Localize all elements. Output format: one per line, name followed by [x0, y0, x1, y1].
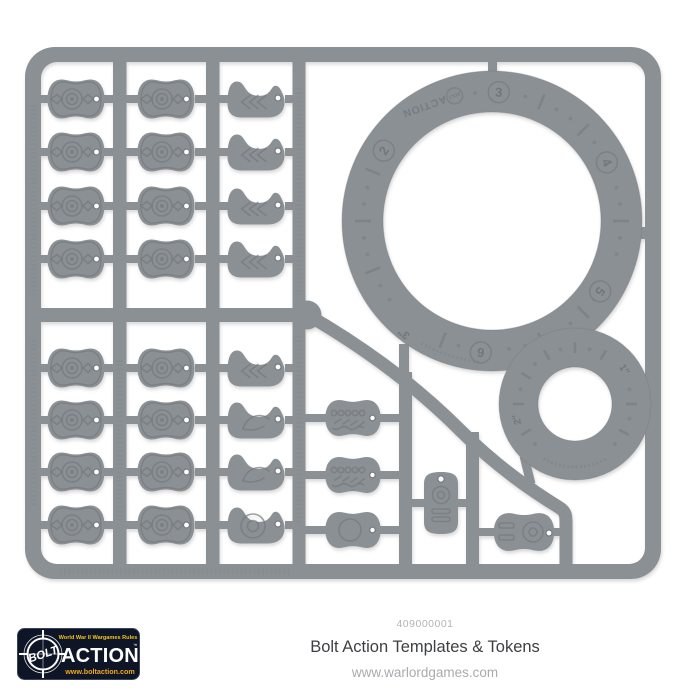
- logo-website: www.boltaction.com: [64, 667, 135, 676]
- svg-text:6: 6: [477, 345, 486, 361]
- ring-number-3: 3: [488, 81, 510, 103]
- sprue-photo: BOLT ACTION 3 2 4 5 6 3″: [0, 0, 700, 620]
- small-ring-template: 1″ 2″: [499, 328, 651, 480]
- logo-action-text: ACTION: [61, 645, 139, 667]
- logo-trademark: ™: [133, 643, 138, 648]
- bolt-action-logo: BOLT World War II Wargames Rules ACTION …: [17, 628, 140, 680]
- svg-text:3: 3: [495, 85, 503, 100]
- product-code: 409000001: [190, 618, 660, 630]
- footer-caption: 409000001 Bolt Action Templates & Tokens…: [190, 618, 660, 680]
- ring-top-nub: [488, 50, 497, 74]
- large-ring-template: BOLT ACTION 3 2 4 5 6 3″: [342, 71, 642, 371]
- product-title: Bolt Action Templates & Tokens: [190, 638, 660, 657]
- website-url: www.warlordgames.com: [190, 665, 660, 680]
- logo-tagline: World War II Wargames Rules: [59, 635, 138, 641]
